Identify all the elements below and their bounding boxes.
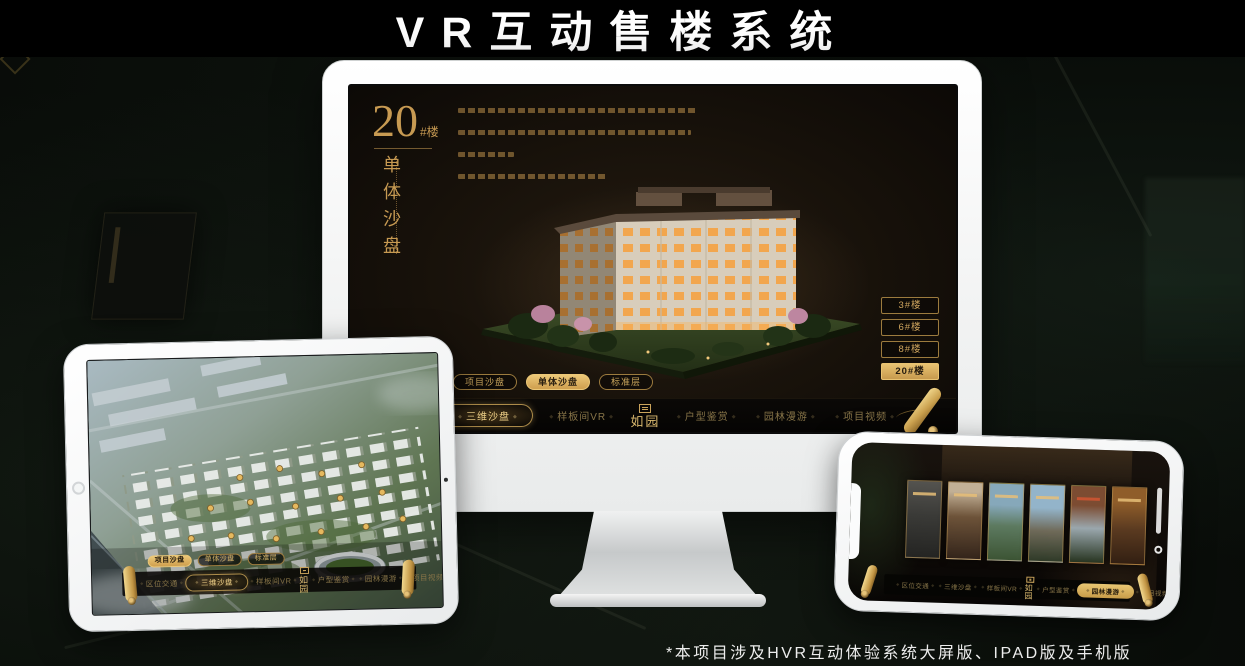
nav-item-showroom-vr[interactable]: 样板间VR <box>979 582 1025 593</box>
nav-item-3d-sandtable[interactable]: 三维沙盘 <box>185 573 249 591</box>
scene-card[interactable] <box>1110 486 1147 565</box>
nav-item-location[interactable]: 区位交通 <box>894 579 937 590</box>
nav-item-garden-tour[interactable]: 园林漫游 <box>357 572 404 584</box>
brand-logo: 如园 <box>630 404 660 428</box>
title-band: VR互动售楼系统 <box>0 0 1245 57</box>
scene-card[interactable] <box>905 480 942 559</box>
heading-caption-line <box>396 158 397 254</box>
nav-item-showroom-vr[interactable]: 样板间VR <box>546 408 617 423</box>
block-heading: 20#楼 单体沙盘 <box>372 98 439 275</box>
block-number-suffix: #楼 <box>420 125 439 139</box>
floor-button-8[interactable]: 8#楼 <box>881 341 939 358</box>
page-title: VR互动售楼系统 <box>396 0 850 60</box>
camera-dot <box>444 478 448 482</box>
footnote: *本项目涉及HVR互动体验系统大屏版、IPAD版及手机版 <box>666 639 1132 663</box>
page: VR互动售楼系统 20#楼 单体沙盘 <box>0 0 1245 666</box>
background-plaque <box>91 212 197 319</box>
nav-item-3d-sandtable[interactable]: 三维沙盘 <box>443 404 533 427</box>
scene-card[interactable] <box>946 481 983 560</box>
scene-card[interactable] <box>1069 485 1106 564</box>
tab-project-sandtable[interactable]: 项目沙盘 <box>148 555 192 568</box>
nav-item-floorplans[interactable]: 户型鉴赏 <box>674 408 740 423</box>
heading-divider <box>374 148 432 149</box>
seal-icon <box>300 566 309 573</box>
camera-dot <box>1154 546 1162 554</box>
floor-button-group: 3#楼 6#楼 8#楼 20#楼 <box>881 297 939 380</box>
tab-single-sandtable[interactable]: 单体沙盘 <box>526 374 590 390</box>
tablet: 项目沙盘 单体沙盘 标准层 区位交通 三维沙盘 样板间VR 如园 户型鉴赏 园林… <box>63 336 459 633</box>
brand-logo: 如园 <box>1024 577 1035 601</box>
tab-standard-floor[interactable]: 标准层 <box>248 552 285 565</box>
scene-card[interactable] <box>1028 484 1065 563</box>
home-button[interactable] <box>72 481 85 494</box>
nav-item-location[interactable]: 区位交通 <box>138 577 185 589</box>
nav-item-floorplans[interactable]: 户型鉴赏 <box>1035 584 1078 595</box>
building-render[interactable] <box>468 144 868 379</box>
block-title-vertical: 单体沙盘 <box>378 155 404 275</box>
floor-button-6[interactable]: 6#楼 <box>881 319 939 336</box>
phone-screen: 区位交通 三维沙盘 样板间VR 如园 户型鉴赏 园林漫游 项目视频 <box>848 442 1171 610</box>
scene-card[interactable] <box>987 482 1024 561</box>
view-tab-group: 项目沙盘 单体沙盘 标准层 <box>453 374 653 390</box>
nav-item-floorplans[interactable]: 户型鉴赏 <box>310 573 357 585</box>
scene-card-strip <box>905 480 1147 566</box>
seal-icon <box>1026 577 1034 583</box>
nav-item-garden-tour[interactable]: 园林漫游 <box>1077 583 1134 599</box>
scroll-menu-icon[interactable] <box>902 384 946 434</box>
tablet-screen: 项目沙盘 单体沙盘 标准层 区位交通 三维沙盘 样板间VR 如园 户型鉴赏 园林… <box>86 352 444 616</box>
phone: 区位交通 三维沙盘 样板间VR 如园 户型鉴赏 园林漫游 项目视频 <box>833 431 1184 622</box>
nav-item-showroom-vr[interactable]: 样板间VR <box>248 575 299 587</box>
scroll-menu-icon[interactable] <box>401 559 415 596</box>
nav-item-3d-sandtable[interactable]: 三维沙盘 <box>937 581 980 592</box>
nav-item-project-video[interactable]: 项目视频 <box>832 408 898 423</box>
brand-logo: 如园 <box>299 566 311 593</box>
seal-icon <box>639 404 651 413</box>
tab-single-sandtable[interactable]: 单体沙盘 <box>198 553 242 566</box>
side-reflection-pill <box>1156 488 1162 534</box>
tab-project-sandtable[interactable]: 项目沙盘 <box>453 374 517 390</box>
block-number: 20 <box>372 95 418 146</box>
scroll-bar <box>901 385 943 434</box>
background-scenery <box>1145 178 1245 363</box>
nav-item-garden-tour[interactable]: 园林漫游 <box>753 408 819 423</box>
floor-button-20[interactable]: 20#楼 <box>881 363 939 380</box>
tab-standard-floor[interactable]: 标准层 <box>599 374 653 390</box>
monitor-base <box>550 594 766 607</box>
floor-button-3[interactable]: 3#楼 <box>881 297 939 314</box>
